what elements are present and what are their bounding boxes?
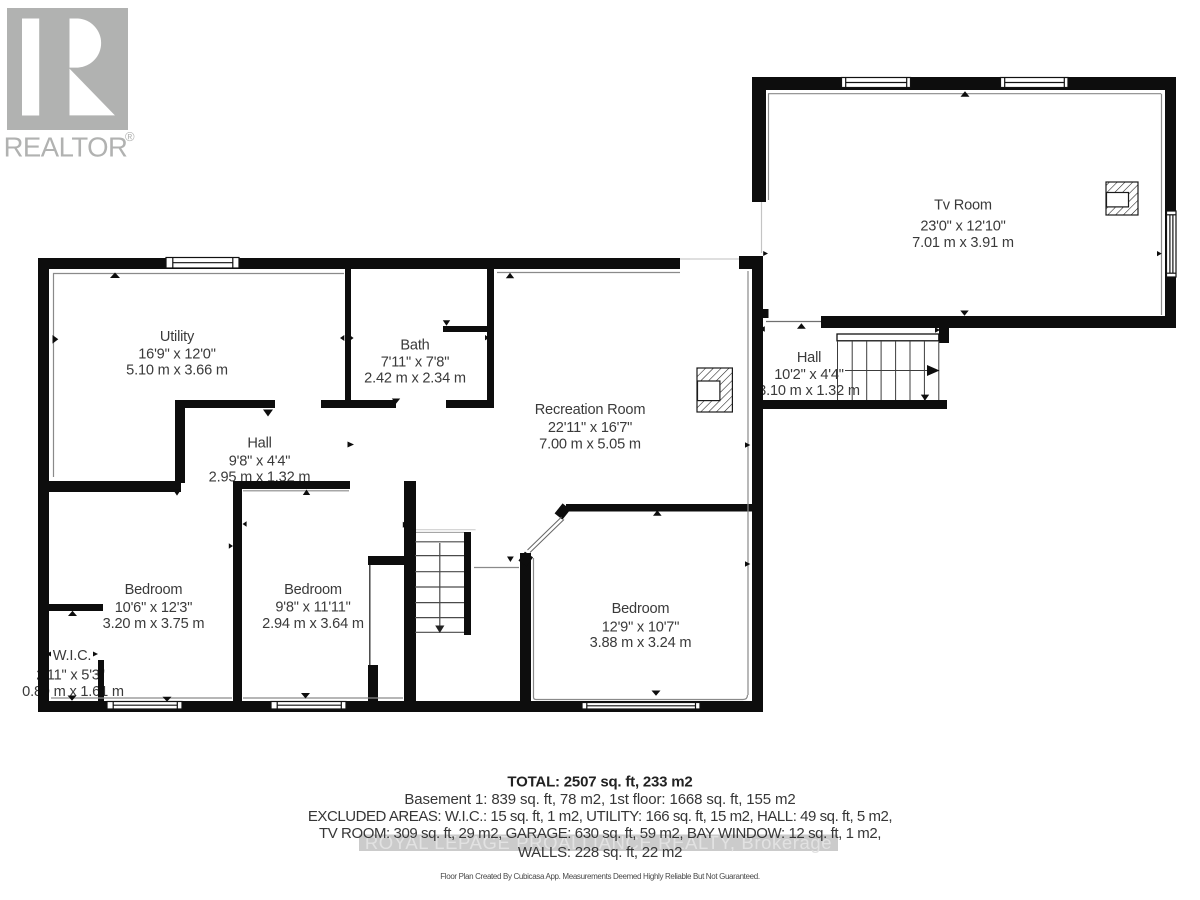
svg-text:22'11" x 16'7": 22'11" x 16'7" bbox=[548, 420, 632, 436]
svg-text:EXCLUDED AREAS: W.I.C.: 15 sq.: EXCLUDED AREAS: W.I.C.: 15 sq. ft, 1 m2,… bbox=[308, 808, 892, 825]
svg-text:Hall: Hall bbox=[797, 350, 821, 366]
svg-text:5.10 m x 3.66 m: 5.10 m x 3.66 m bbox=[126, 363, 228, 379]
svg-text:Bedroom: Bedroom bbox=[125, 582, 183, 598]
svg-text:9'8" x 11'11": 9'8" x 11'11" bbox=[275, 600, 350, 616]
svg-text:Recreation Room: Recreation Room bbox=[535, 402, 646, 418]
svg-text:23'0" x 12'10": 23'0" x 12'10" bbox=[920, 219, 1005, 235]
svg-text:2.94 m x 3.64 m: 2.94 m x 3.64 m bbox=[262, 616, 364, 632]
svg-text:3.10 m x 1.32 m: 3.10 m x 1.32 m bbox=[758, 383, 860, 399]
svg-text:7'11" x 7'8": 7'11" x 7'8" bbox=[381, 355, 449, 371]
svg-text:10'6" x 12'3": 10'6" x 12'3" bbox=[115, 600, 192, 616]
svg-text:WALLS: 228 sq. ft, 22 m2: WALLS: 228 sq. ft, 22 m2 bbox=[518, 844, 682, 861]
svg-text:Bedroom: Bedroom bbox=[612, 601, 670, 617]
svg-text:7.01 m x 3.91 m: 7.01 m x 3.91 m bbox=[912, 235, 1014, 251]
svg-text:Bath: Bath bbox=[400, 338, 429, 354]
svg-text:TV ROOM: 309 sq. ft, 29 m2, GA: TV ROOM: 309 sq. ft, 29 m2, GARAGE: 630 … bbox=[319, 825, 881, 842]
svg-text:REALTOR: REALTOR bbox=[4, 132, 128, 163]
svg-text:W.I.C.: W.I.C. bbox=[53, 648, 92, 664]
svg-text:Bedroom: Bedroom bbox=[284, 582, 342, 598]
svg-text:3.20 m x 3.75 m: 3.20 m x 3.75 m bbox=[103, 616, 205, 632]
svg-text:12'9" x 10'7": 12'9" x 10'7" bbox=[602, 620, 679, 636]
svg-text:16'9" x 12'0": 16'9" x 12'0" bbox=[138, 347, 215, 363]
svg-text:10'2" x 4'4": 10'2" x 4'4" bbox=[774, 367, 844, 383]
svg-text:3.88 m x 3.24 m: 3.88 m x 3.24 m bbox=[590, 635, 692, 651]
svg-text:TOTAL: 2507 sq. ft, 233 m2: TOTAL: 2507 sq. ft, 233 m2 bbox=[507, 774, 692, 791]
svg-text:2.42 m x 2.34 m: 2.42 m x 2.34 m bbox=[364, 371, 466, 387]
svg-text:Tv Room: Tv Room bbox=[934, 198, 992, 214]
svg-text:Basement 1: 839 sq. ft, 78 m2,: Basement 1: 839 sq. ft, 78 m2, 1st floor… bbox=[404, 791, 795, 808]
svg-text:9'8" x 4'4": 9'8" x 4'4" bbox=[229, 454, 291, 470]
svg-text:®: ® bbox=[125, 129, 135, 144]
svg-text:Hall: Hall bbox=[247, 436, 271, 452]
svg-text:7.00 m x 5.05 m: 7.00 m x 5.05 m bbox=[539, 437, 641, 453]
svg-text:Floor Plan Created By Cubicasa: Floor Plan Created By Cubicasa App. Meas… bbox=[440, 872, 760, 881]
svg-text:Utility: Utility bbox=[160, 329, 195, 345]
